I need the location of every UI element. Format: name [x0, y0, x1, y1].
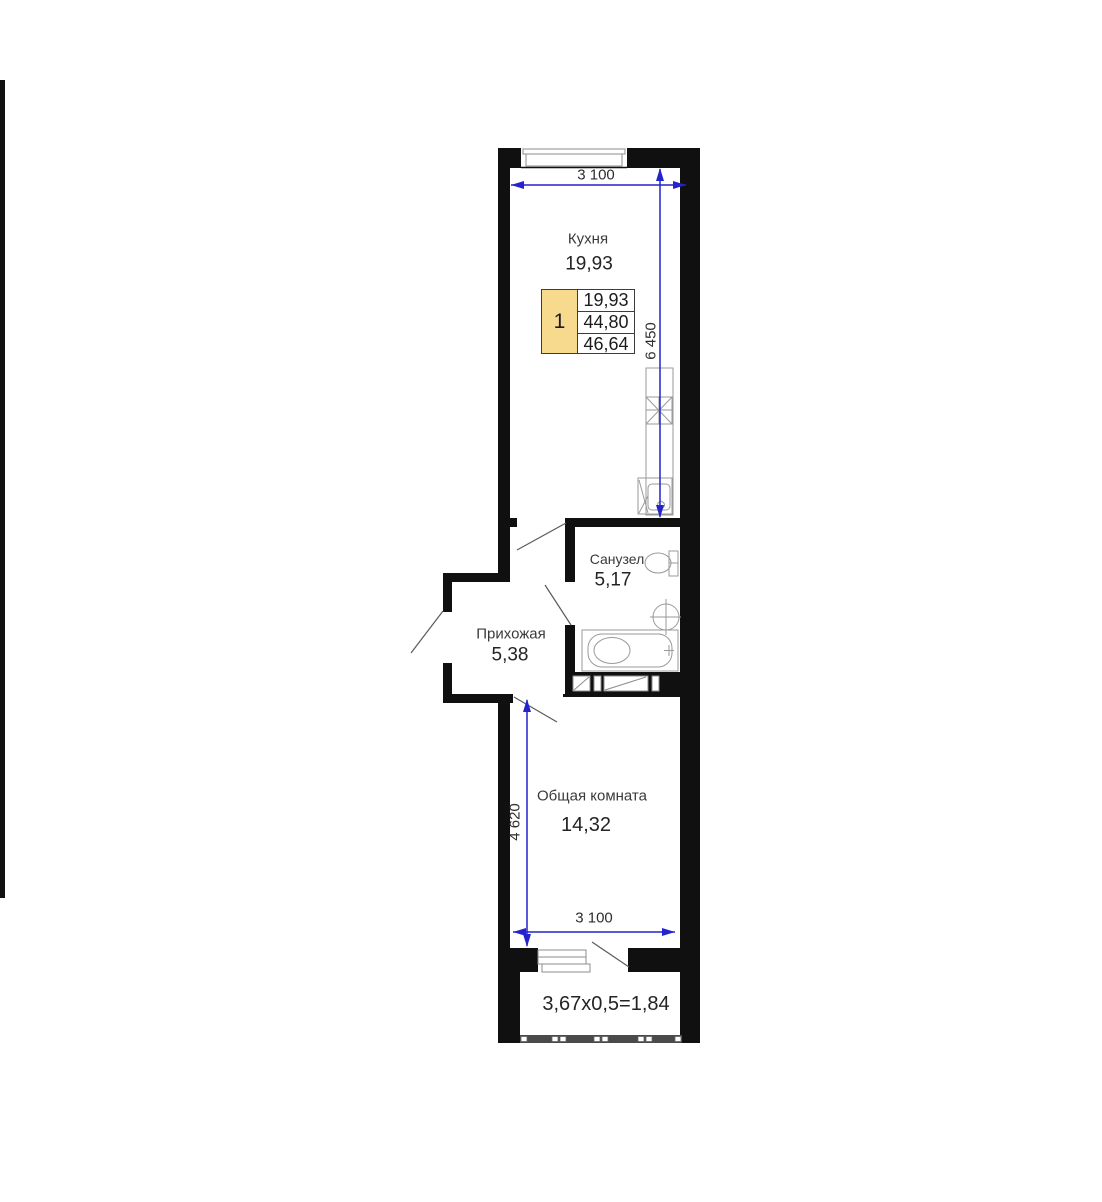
wall-right: [680, 148, 700, 1043]
bathroom-door-swing: [545, 585, 571, 625]
wall-bottom-right: [628, 948, 680, 972]
bathtub-icon: [582, 630, 678, 671]
wall-bathroom-left-upper: [565, 518, 575, 582]
wall-left-upper: [498, 148, 510, 582]
room-area-living: 14,32: [561, 815, 611, 835]
wall-bathroom-top: [565, 518, 680, 527]
wall-alcove-left-upper: [443, 573, 452, 612]
balcony-glazing-icon: [520, 1035, 682, 1043]
balcony-area-label: 3,67x0,5=1,84: [542, 994, 669, 1014]
wall-balcony-left: [498, 948, 520, 1043]
vent-shaft-icon: [573, 676, 659, 691]
dim-label-living-height: 4 620: [508, 803, 523, 841]
room-area-hallway: 5,38: [492, 646, 529, 665]
dim-label-kitchen-height: 6 450: [644, 322, 659, 360]
wall-hall-living: [443, 694, 513, 703]
dim-label-bottom: 3 100: [575, 911, 613, 926]
unit-number: 1: [542, 290, 578, 353]
stove-icon: [646, 397, 672, 424]
entrance-door-swing: [411, 611, 443, 653]
vent-shaft-wall: [563, 672, 680, 697]
dim-label-top: 3 100: [577, 168, 615, 183]
room-area-bathroom: 5,17: [595, 571, 632, 590]
room-label-bathroom: Санузел: [590, 552, 645, 566]
kitchen-door-swing: [517, 523, 566, 550]
room-label-living: Общая комната: [537, 789, 647, 804]
unit-area-row: 44,80: [578, 312, 634, 334]
wall-alcove-top: [443, 573, 508, 582]
balcony-door-swing: [592, 942, 629, 967]
walls: [443, 148, 700, 1043]
room-label-hallway: Прихожая: [476, 627, 546, 642]
kitchen-window-icon: [521, 148, 627, 168]
toilet-icon: [645, 551, 678, 576]
unit-area-row: 19,93: [578, 290, 634, 312]
kitchen-sink-icon: [638, 478, 672, 514]
unit-info-box: 1 19,93 44,80 46,64: [541, 289, 635, 354]
wall-kitchen-door-stub: [508, 518, 517, 527]
room-label-kitchen: Кухня: [568, 232, 608, 247]
unit-area-row: 46,64: [578, 334, 634, 355]
floor-plan-drawing: [0, 0, 1102, 1202]
unit-areas: 19,93 44,80 46,64: [578, 290, 634, 353]
living-window-icon: [538, 948, 590, 972]
living-door-swing: [514, 697, 557, 722]
room-area-kitchen: 19,93: [565, 255, 613, 274]
